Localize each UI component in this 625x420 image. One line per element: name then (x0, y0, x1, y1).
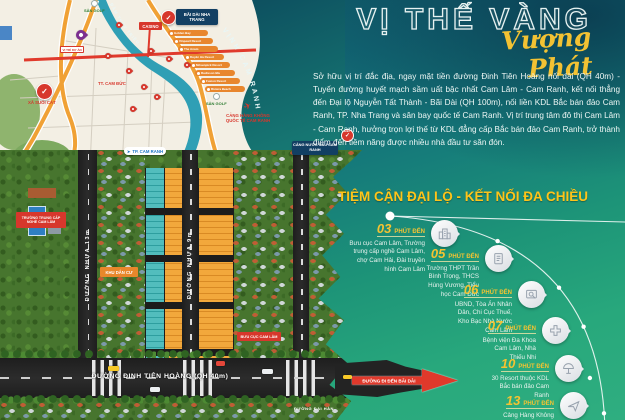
road-13m: ĐƯỜNG NHỰA 13m (78, 150, 97, 358)
car (150, 387, 160, 392)
campus-building (28, 188, 56, 198)
side-road-label: ĐƯỜNG ĐẠI HÀN (294, 406, 334, 411)
post-office-label-text: BƯU CỤC CAM LÂM (241, 335, 278, 339)
road-9m: ĐƯỜNG NHỰA 9m (182, 150, 198, 358)
timeline-arc (390, 216, 605, 420)
plot-strip-teal (145, 168, 166, 358)
post-office-label: BƯU CỤC CAM LÂM (237, 332, 281, 341)
car (262, 369, 273, 374)
main-road-label: ĐƯỜNG ĐINH TIÊN HOÀNG (QH 40m) (30, 373, 290, 380)
timeline-heading: TIỆM CẬN ĐẠI LỘ - KẾT NỐI ĐA CHIỀU (338, 189, 620, 204)
plot-strip-orange (164, 168, 184, 358)
road-13m-label: ĐƯỜNG NHỰA 13m (85, 229, 91, 302)
aerial-masterplan: ĐƯỜNG NHỰA 13m ĐƯỜNG NHỰA 9m ĐƯỜNG ĐINH … (0, 150, 362, 420)
residential-zone-bottom (0, 402, 362, 420)
residential-label: KHU DÂN CƯ (100, 267, 138, 277)
main-road: ĐƯỜNG ĐINH TIÊN HOÀNG (QH 40m) (0, 358, 362, 398)
school-campus-zone (0, 150, 78, 358)
residential-zone (232, 150, 293, 358)
timeline-start-dot (386, 212, 395, 221)
car (108, 366, 119, 371)
brochure-page: VỊNH CAM RANH ĐẦM THỦY TRIỀU ĐƯỜNG NHỰA … (0, 0, 625, 420)
timeline-curve (340, 200, 625, 420)
car (216, 361, 225, 366)
road-9m-label: ĐƯỜNG NHỰA 9m (187, 231, 193, 299)
timeline-horizontal-line (390, 216, 625, 222)
location-map: VỊNH CAM RANH ĐẦM THỦY TRIỀU (0, 0, 345, 170)
school-label: TRƯỜNG TRUNG CẤP NGHỀ CAM LÂM (16, 212, 66, 228)
residential-zone (97, 150, 145, 358)
school-label-text: TRƯỜNG TRUNG CẤP NGHỀ CAM LÂM (17, 216, 65, 225)
side-road-vertical (293, 150, 309, 358)
timeline-dots (495, 239, 606, 416)
plot-strip-orange (198, 168, 234, 358)
residential-label-text: KHU DÂN CƯ (106, 270, 133, 275)
map-water-patch (0, 26, 12, 40)
hero-description: Sở hữu vị trí đắc địa, ngay mặt tiền đườ… (313, 70, 620, 149)
